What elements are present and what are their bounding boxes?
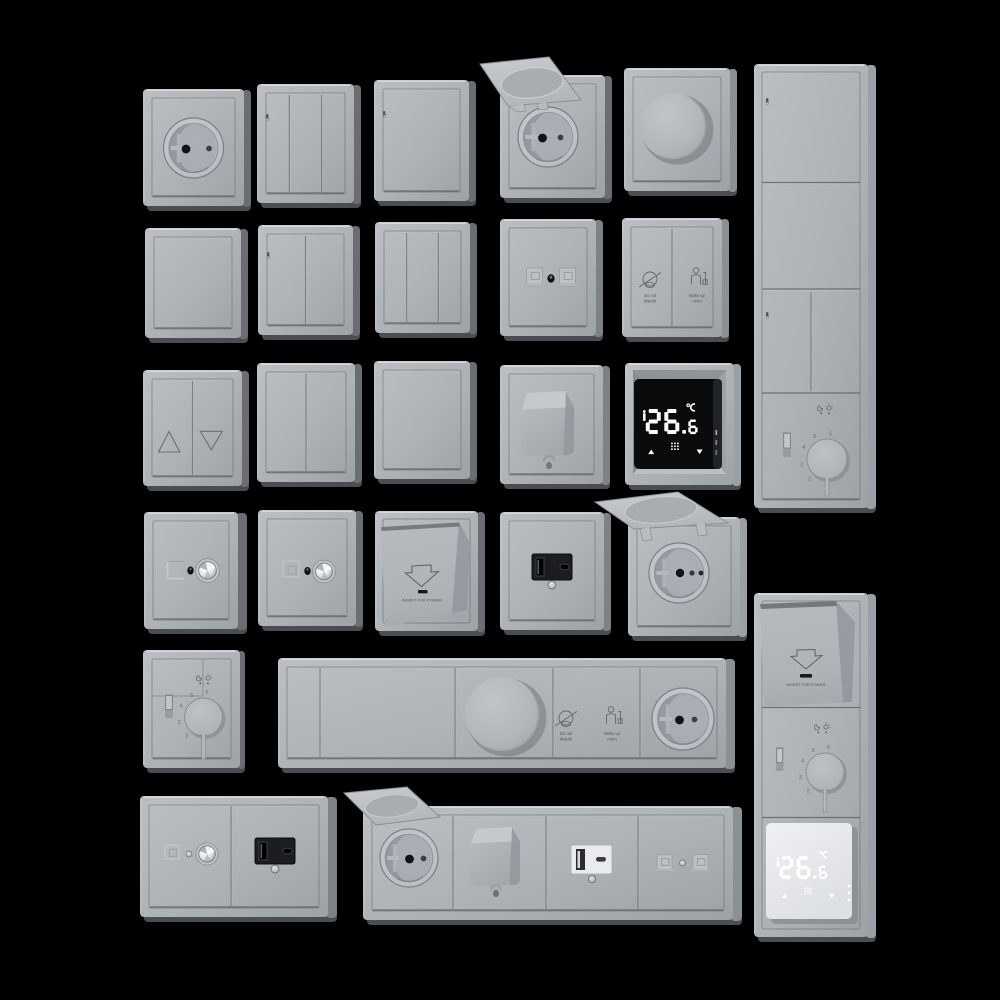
svg-text:2: 2 [807,789,810,795]
svg-text:Make up: Make up [604,731,620,736]
svg-text:5: 5 [812,748,815,754]
svg-text:3: 3 [177,720,180,726]
svg-text:4: 4 [180,704,183,710]
svg-text:6: 6 [829,431,832,437]
svg-text:INSERT FOR POWER: INSERT FOR POWER [402,598,442,603]
svg-text:room: room [607,737,617,742]
svg-text:disturb: disturb [560,737,573,742]
svg-text:6: 6 [827,745,830,751]
svg-text:Do not: Do not [560,731,573,736]
svg-text:3: 3 [799,775,802,781]
svg-text:Do not: Do not [644,293,657,298]
svg-text:INSERT FOR POWER: INSERT FOR POWER [786,682,825,687]
svg-text:4: 4 [802,445,805,451]
svg-text:5: 5 [190,693,193,699]
svg-text:room: room [692,299,702,304]
svg-text:2: 2 [808,476,811,482]
svg-text:disturb: disturb [644,299,657,304]
svg-text:6: 6 [205,690,208,696]
svg-text:3: 3 [800,462,803,468]
svg-text:4: 4 [801,759,804,765]
svg-text:5: 5 [813,434,816,440]
svg-text:Make up: Make up [689,293,705,298]
svg-text:2: 2 [185,734,188,740]
